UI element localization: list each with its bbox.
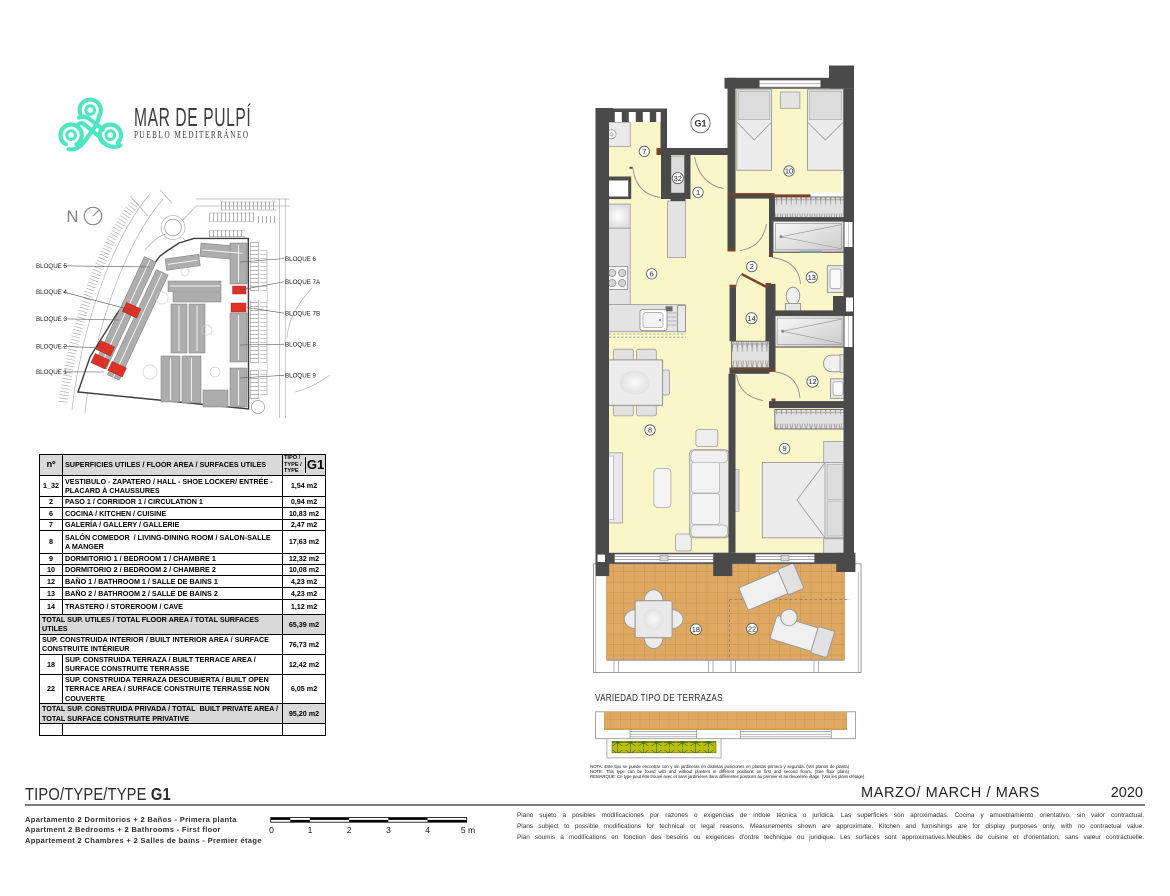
svg-text:BLOQUE 4: BLOQUE 4 (36, 289, 68, 296)
svg-text:14: 14 (747, 314, 755, 323)
svg-text:22: 22 (748, 624, 756, 633)
svg-text:1: 1 (308, 825, 313, 835)
svg-text:8: 8 (648, 426, 652, 435)
svg-text:BLOQUE 5: BLOQUE 5 (36, 263, 68, 270)
svg-text:2: 2 (750, 262, 754, 271)
svg-text:3: 3 (386, 825, 391, 835)
svg-text:BLOQUE 2: BLOQUE 2 (36, 344, 68, 351)
svg-text:13: 13 (808, 273, 816, 282)
svg-text:BLOQUE 8: BLOQUE 8 (285, 341, 317, 348)
svg-text:BLOQUE 3: BLOQUE 3 (36, 316, 68, 323)
svg-text:0: 0 (269, 825, 274, 835)
svg-text:9: 9 (783, 444, 787, 453)
svg-text:6: 6 (650, 269, 654, 278)
svg-text:10: 10 (785, 167, 793, 176)
svg-text:18: 18 (692, 625, 700, 634)
svg-text:1: 1 (696, 188, 700, 197)
svg-text:G1: G1 (694, 118, 706, 128)
svg-text:32: 32 (674, 174, 682, 183)
svg-text:BLOQUE 9: BLOQUE 9 (285, 373, 317, 380)
svg-text:N: N (67, 208, 79, 226)
svg-text:5 m: 5 m (461, 825, 475, 835)
svg-text:2: 2 (347, 825, 352, 835)
svg-text:12: 12 (808, 377, 816, 386)
svg-text:BLOQUE 6: BLOQUE 6 (285, 256, 317, 263)
svg-text:7: 7 (642, 147, 646, 156)
svg-text:4: 4 (425, 825, 430, 835)
svg-text:BLOQUE 7A: BLOQUE 7A (285, 279, 321, 286)
svg-text:BLOQUE 1: BLOQUE 1 (36, 369, 68, 376)
svg-text:BLOQUE 7B: BLOQUE 7B (285, 310, 320, 317)
